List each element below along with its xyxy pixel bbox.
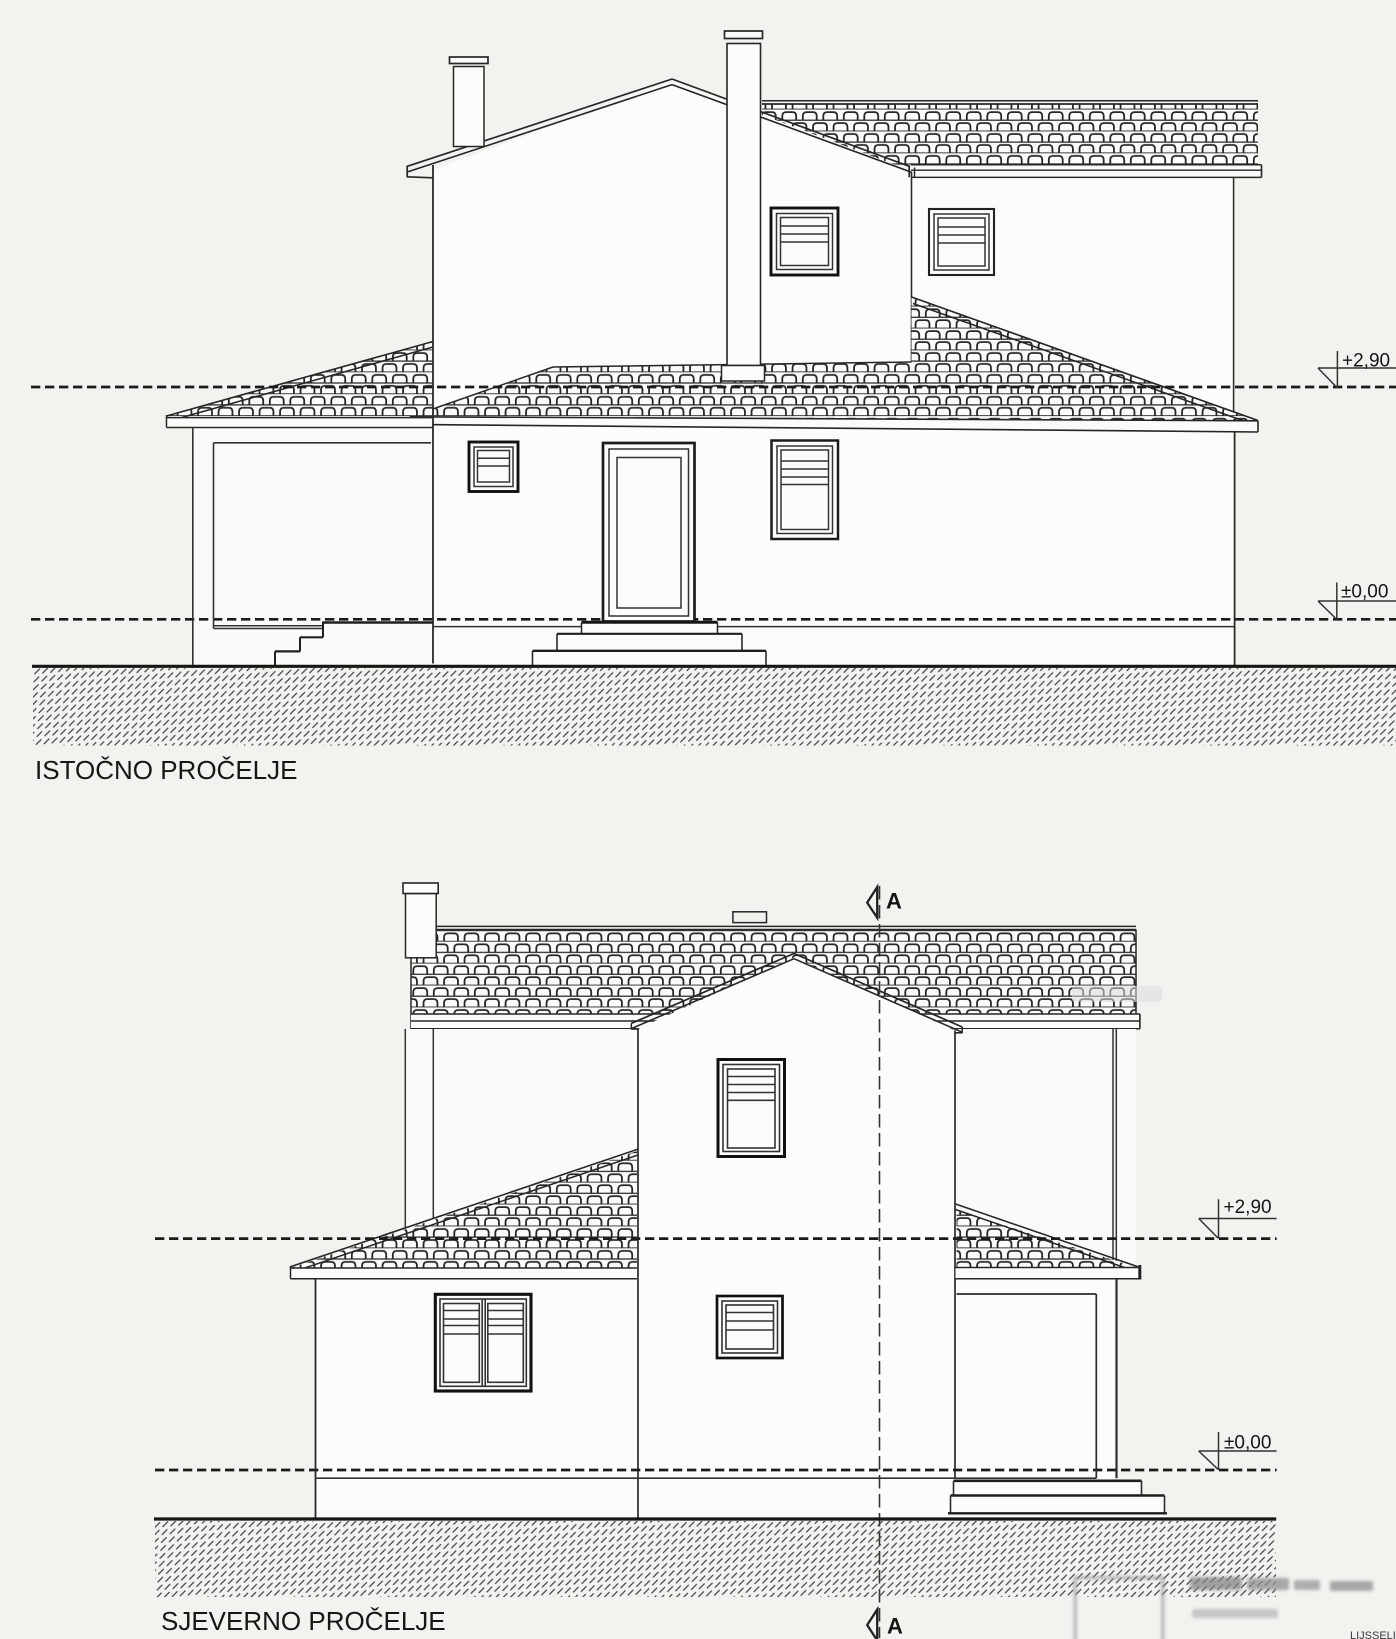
svg-text:ISTOČNO PROČELJE: ISTOČNO PROČELJE bbox=[35, 755, 297, 785]
svg-text:SJEVERNO PROČELJE: SJEVERNO PROČELJE bbox=[161, 1606, 446, 1636]
svg-text:A: A bbox=[886, 889, 902, 914]
svg-text:+2,90: +2,90 bbox=[1342, 351, 1390, 372]
svg-text:LIJSSELICE: LIJSSELICE bbox=[1350, 1630, 1396, 1639]
svg-text:±0,00: ±0,00 bbox=[1224, 1433, 1271, 1454]
svg-text:+2,90: +2,90 bbox=[1224, 1197, 1272, 1218]
svg-text:A: A bbox=[887, 1614, 903, 1639]
svg-text:±0,00: ±0,00 bbox=[1341, 582, 1388, 603]
